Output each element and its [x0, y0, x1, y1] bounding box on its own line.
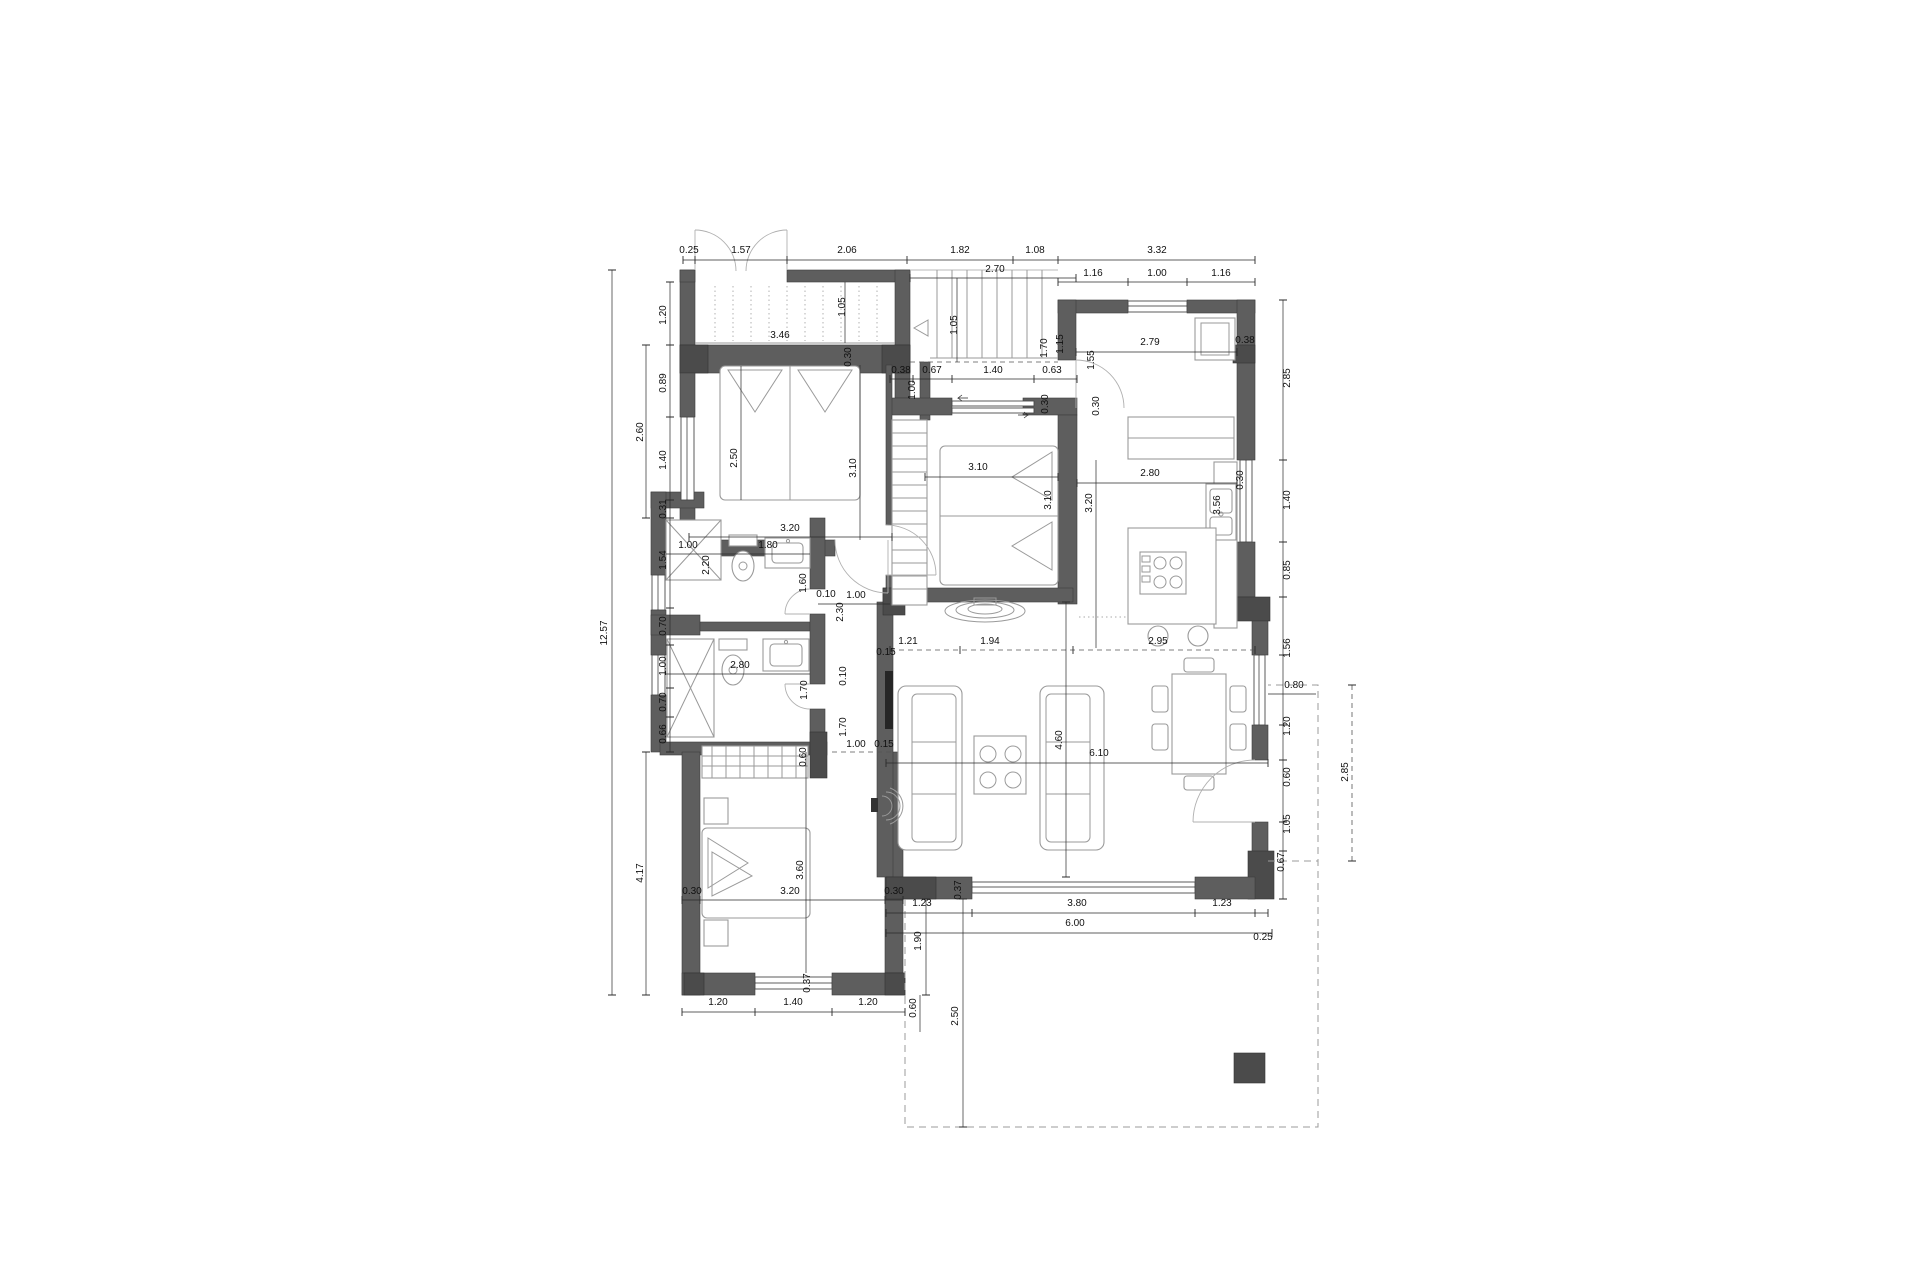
floor-plan-page: 0.251.572.061.821.083.321.161.001.162.70… [0, 0, 1920, 1280]
bed-middle-bedroom [940, 446, 1058, 585]
dim-label: 3.20 [1084, 493, 1095, 513]
dim-label: 1.70 [1039, 338, 1050, 358]
dim-label: 0.30 [1235, 470, 1246, 490]
window-bath-a-left [652, 575, 665, 610]
dim-label: 1.40 [783, 997, 803, 1008]
chair [1152, 724, 1168, 750]
bed-bedroom3 [702, 798, 810, 946]
dim-label: 3.10 [1043, 490, 1054, 510]
chair [1152, 686, 1168, 712]
dim-label: 1.15 [1055, 334, 1066, 354]
dim-label: 1.82 [950, 245, 970, 256]
dim-label: 4.60 [1054, 730, 1065, 750]
dim-label: 2.85 [1282, 368, 1293, 388]
dim-label: 0.60 [798, 747, 809, 767]
dim-label: 0.30 [884, 886, 904, 897]
dim-label: 0.15 [876, 647, 896, 658]
window-pantry-top [1128, 301, 1187, 312]
kitchen-counter-top [1128, 417, 1234, 459]
sofa-left [898, 686, 962, 850]
dim-label: 1.00 [1147, 268, 1167, 279]
dim-label: 1.55 [1086, 350, 1097, 370]
dim-label: 0.30 [843, 347, 854, 367]
dim-label: 0.70 [658, 692, 669, 712]
dim-label: 1.90 [913, 931, 924, 951]
dim-label: 1.00 [846, 739, 866, 750]
dim-label: 0.15 [874, 739, 894, 750]
dim-label: 0.70 [658, 616, 669, 636]
wardrobe-middle-bedroom [892, 420, 927, 605]
stove [1140, 552, 1186, 594]
nightstand [704, 920, 728, 946]
dim-label: 4.17 [635, 863, 646, 883]
dim-label: 1.00 [658, 656, 669, 676]
sofa-right [1040, 686, 1104, 850]
dim-label: 6.10 [1089, 748, 1109, 759]
shower-bath-b [667, 639, 714, 737]
dim-label: 12.57 [599, 620, 610, 645]
dim-label: 2.85 [1340, 762, 1351, 782]
dim-label: 0.37 [953, 880, 964, 900]
closet-bedroom3 [702, 746, 808, 778]
dim-label: 0.10 [838, 666, 849, 686]
window-living-right [1254, 655, 1265, 725]
dim-label: 6.00 [1065, 918, 1085, 929]
dim-label: 3.56 [1212, 495, 1223, 515]
dim-label: 1.08 [1025, 245, 1045, 256]
floor-plan-drawing: 0.251.572.061.821.083.321.161.001.162.70… [0, 0, 1920, 1280]
chair [1184, 776, 1214, 790]
dim-label: 2.79 [1140, 337, 1160, 348]
dim-label: 1.23 [1212, 898, 1232, 909]
tv [885, 671, 893, 729]
dim-label: 1.40 [658, 450, 669, 470]
dim-label: 3.10 [848, 458, 859, 478]
dim-label: 1.40 [983, 365, 1003, 376]
dim-label: 1.20 [1282, 716, 1293, 736]
nightstand [704, 798, 728, 824]
dim-label: 0.10 [816, 589, 836, 600]
dim-label: 3.32 [1147, 245, 1167, 256]
dim-label: 1.20 [658, 305, 669, 325]
dim-label: 0.30 [1091, 396, 1102, 416]
chair [1184, 658, 1214, 672]
chair [1230, 686, 1246, 712]
dim-label: 2.70 [985, 264, 1005, 275]
dim-label: 3.20 [780, 523, 800, 534]
fridge [1195, 318, 1235, 360]
dim-label: 2.06 [837, 245, 857, 256]
dim-label: 1.16 [1083, 268, 1103, 279]
stair-ramp-topleft [695, 286, 895, 343]
dim-label: 1.16 [1211, 268, 1231, 279]
dim-label: 1.60 [798, 573, 809, 593]
dim-label: 2.80 [730, 660, 750, 671]
dim-label: 0.25 [679, 245, 699, 256]
dim-label: 0.60 [908, 998, 919, 1018]
dim-label: 2.50 [729, 448, 740, 468]
dim-label: 3.60 [795, 860, 806, 880]
window-bedroom1-left [681, 417, 694, 500]
bar-stool [1188, 626, 1208, 646]
washbasin-bath-b [763, 639, 809, 671]
dim-label: 1.05 [949, 315, 960, 335]
dim-label: 1.56 [1282, 638, 1293, 658]
dim-label: 1.40 [1282, 490, 1293, 510]
dim-label: 0.25 [1253, 932, 1273, 943]
dim-label: 0.30 [1040, 394, 1051, 414]
dim-label: 2.20 [701, 555, 712, 575]
dim-label: 0.38 [891, 365, 911, 376]
dim-label: 2.95 [1148, 636, 1168, 647]
dim-label: 2.60 [635, 422, 646, 442]
dim-label: 2.30 [835, 602, 846, 622]
terrace-pillar [1234, 1053, 1265, 1083]
dim-label: 3.20 [780, 886, 800, 897]
dim-label: 2.80 [1140, 468, 1160, 479]
window-bedroom3-bottom [755, 977, 832, 989]
dim-label: 1.70 [838, 717, 849, 737]
dim-label: 2.50 [950, 1006, 961, 1026]
stair-direction-arrow [914, 320, 928, 336]
dim-label: 3.80 [1067, 898, 1087, 909]
dim-label: 1.05 [837, 297, 848, 317]
dim-label: 0.63 [1042, 365, 1062, 376]
dim-label: 0.38 [1235, 335, 1255, 346]
toilet-bath-a [729, 535, 757, 581]
dim-label: 3.10 [968, 462, 988, 473]
dim-label: 0.67 [1276, 852, 1287, 872]
chair [1230, 724, 1246, 750]
dim-label: 0.85 [1282, 560, 1293, 580]
dim-label: 0.67 [922, 365, 942, 376]
dim-label: 1.80 [758, 540, 778, 551]
dim-label: 1.94 [980, 636, 1000, 647]
dim-label: 0.66 [658, 724, 669, 744]
dim-label: 1.57 [731, 245, 751, 256]
dim-label: 1.23 [912, 898, 932, 909]
window-living-bottom [972, 882, 1195, 893]
dim-label: 1.00 [678, 540, 698, 551]
dim-label: 0.31 [658, 499, 669, 519]
dim-label: 1.20 [708, 997, 728, 1008]
dim-label: 0.60 [1282, 767, 1293, 787]
dim-label: 0.37 [802, 973, 813, 993]
dining-table [1152, 658, 1246, 790]
dim-label: 1.00 [846, 590, 866, 601]
dim-label: 0.89 [658, 373, 669, 393]
entry-door-leaf [952, 395, 1034, 418]
dim-label: 1.20 [858, 997, 878, 1008]
stair-main [910, 270, 1058, 362]
dim-label: 3.46 [770, 330, 790, 341]
door-bedroom1 [835, 540, 888, 593]
dim-label: 1.05 [1282, 814, 1293, 834]
dim-label: 1.54 [658, 550, 669, 570]
dim-label: 1.00 [907, 380, 918, 400]
dim-label: 1.70 [799, 680, 810, 700]
dim-label: 1.21 [898, 636, 918, 647]
dim-label: 0.80 [1284, 680, 1304, 691]
coffee-table [974, 736, 1026, 794]
dim-label: 0.30 [682, 886, 702, 897]
